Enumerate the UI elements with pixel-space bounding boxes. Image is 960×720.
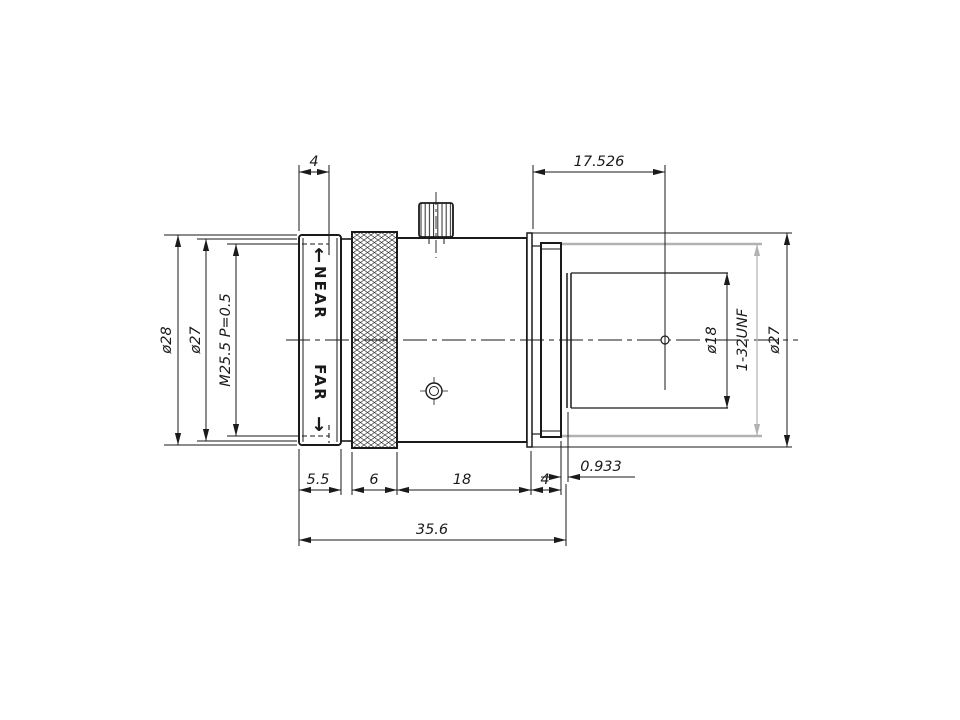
dim-text-knurl: 6 (369, 472, 378, 488)
dim-text-thread-relief: 0.933 (580, 459, 622, 475)
dim-text-total: 35.6 (416, 522, 448, 538)
dim-text-flange-focal: 17.526 (574, 154, 625, 170)
dim-text-front-ring: 5.5 (306, 472, 329, 488)
drawing-svg: 4 17.526 ø28 ø27 M25.5 P=0.5 ø18 1-32UNF… (0, 0, 960, 720)
focus-ring-near-label: NEAR (311, 266, 329, 320)
dim-text-flange-dia: ø27 (767, 326, 783, 355)
dim-text-filter-depth: 4 (309, 154, 318, 170)
focus-ring-far-label: FAR (311, 364, 329, 402)
dim-text-body: 18 (453, 472, 471, 488)
dim-text-flange-len: 4 (540, 472, 549, 488)
far-arrow-icon: ↓ (311, 414, 327, 436)
dim-text-rear-dia: ø18 (704, 326, 720, 354)
dim-text-filter-thread: M25.5 P=0.5 (218, 293, 234, 386)
near-arrow-icon: ↑ (311, 245, 327, 267)
dim-text-outer-dia: ø28 (159, 326, 175, 354)
dim-text-mount-thread: 1-32UNF (735, 308, 751, 371)
dim-text-front-dia: ø27 (188, 326, 204, 355)
lens-technical-drawing: 4 17.526 ø28 ø27 M25.5 P=0.5 ø18 1-32UNF… (0, 0, 960, 720)
